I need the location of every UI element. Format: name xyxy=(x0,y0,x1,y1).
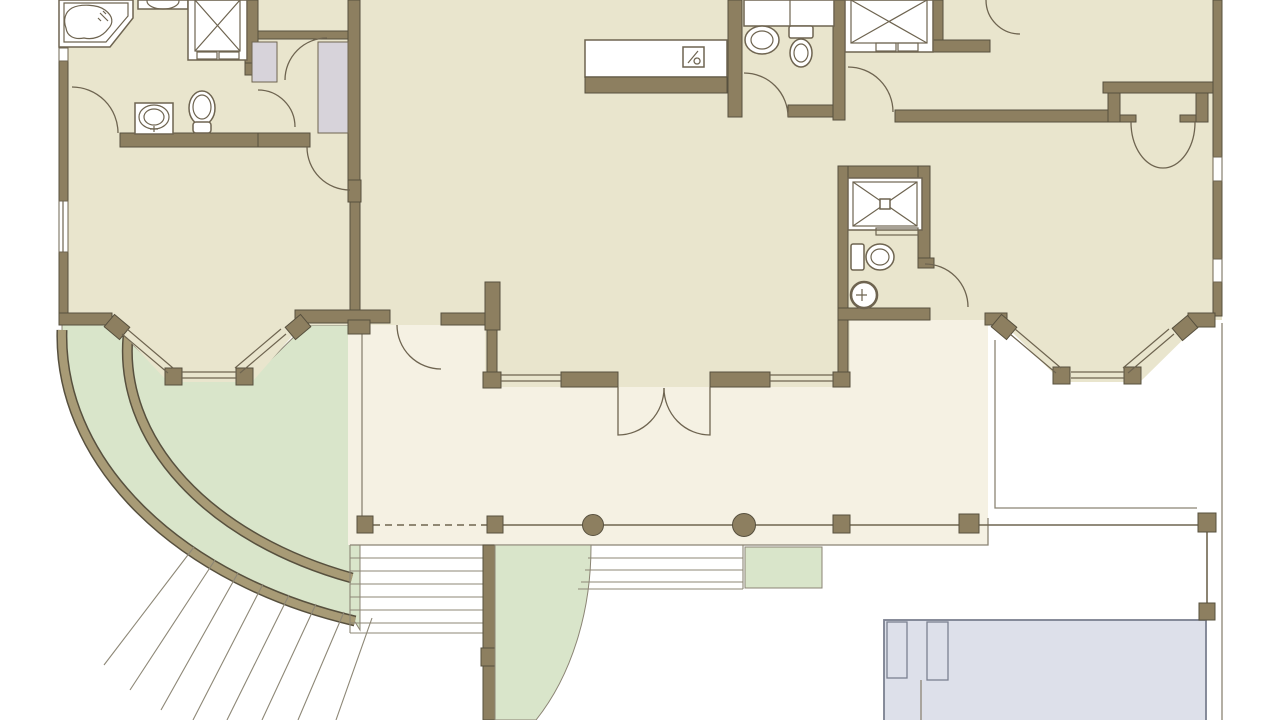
left-steps xyxy=(350,545,483,633)
terrace-post-bottom xyxy=(1199,603,1215,620)
toilet-tank-icon xyxy=(851,244,864,270)
kitchen-island-base xyxy=(585,77,727,93)
railing-column xyxy=(733,514,756,537)
bay-post xyxy=(1053,367,1070,384)
exterior-wall-left xyxy=(59,252,68,318)
floor-plan-drawing xyxy=(0,0,1280,720)
toilet-bowl-icon xyxy=(866,244,894,270)
pool-step-1 xyxy=(887,622,907,678)
closet-shelving xyxy=(252,42,277,82)
curved-garden xyxy=(62,325,372,720)
niche-jamb xyxy=(1180,115,1196,122)
railing-post xyxy=(833,515,850,533)
bedroom-divider-jog xyxy=(348,180,361,202)
great-room-south-wall xyxy=(833,372,850,387)
powder-vanity xyxy=(744,0,834,26)
bay-post xyxy=(236,368,253,385)
bathroom-north-wall xyxy=(838,166,930,178)
bedroom-south-wall xyxy=(59,313,112,325)
bathroom-south-wall xyxy=(838,308,930,320)
exterior-wall-left xyxy=(59,61,68,201)
powder-toilet-tank xyxy=(789,26,813,38)
railing-post xyxy=(357,516,373,533)
railing-post xyxy=(1198,513,1216,532)
bathroom-wall-jog xyxy=(918,258,934,268)
planter-bed xyxy=(745,547,822,588)
porch-corner-wall xyxy=(485,282,500,330)
shower-drain-icon xyxy=(880,199,890,209)
wall-post xyxy=(483,372,501,388)
great-room-south-wall xyxy=(561,372,618,387)
niche-west-wall xyxy=(1108,93,1120,122)
niche-north-wall xyxy=(1103,82,1213,93)
bath-south-wall xyxy=(258,133,310,147)
powder-east-wall xyxy=(833,0,845,120)
hall-south-wall xyxy=(895,110,1108,122)
porch-steps xyxy=(350,545,822,720)
closet-shelving xyxy=(318,42,348,133)
vanity-counter xyxy=(138,0,188,9)
closet-north-wall xyxy=(250,31,348,39)
toilet-base-icon xyxy=(193,122,211,133)
kitchen-island-counter xyxy=(585,40,727,77)
exterior-wall-right xyxy=(1213,0,1222,157)
powder-toilet-bowl xyxy=(790,39,812,67)
center-steps xyxy=(578,545,743,589)
shower-stall xyxy=(845,0,933,52)
wall-to-porch xyxy=(838,320,848,372)
niche-east-wall xyxy=(1196,93,1208,122)
porch-corner-wall xyxy=(487,330,497,374)
niche-jamb xyxy=(1120,115,1136,122)
railing-post xyxy=(487,516,503,533)
bedroom-divider-wall xyxy=(350,202,360,310)
powder-sink-icon xyxy=(745,26,779,54)
bath-south-wall xyxy=(120,133,258,147)
powder-south-wall xyxy=(788,105,833,117)
railing-post xyxy=(959,514,979,533)
curved-planter xyxy=(495,545,591,720)
window xyxy=(1213,157,1222,181)
bedroom-divider-wall xyxy=(348,0,360,180)
window xyxy=(59,48,68,61)
floor-plan-screenshot xyxy=(0,0,1280,720)
railing-column xyxy=(583,515,604,536)
great-room-south-wall xyxy=(710,372,770,387)
window xyxy=(1213,259,1222,282)
exterior-wall-right xyxy=(1213,282,1222,316)
shower-room-wall xyxy=(930,40,990,52)
bay-post xyxy=(165,368,182,385)
powder-west-wall xyxy=(728,0,742,117)
pool-step-2 xyxy=(927,622,948,680)
exterior-wall-right xyxy=(1213,181,1222,259)
bedroom-south-wall xyxy=(295,310,390,323)
steps-side-wall xyxy=(483,545,495,720)
bathroom-west-wall xyxy=(838,166,848,320)
wall-post xyxy=(348,320,370,334)
